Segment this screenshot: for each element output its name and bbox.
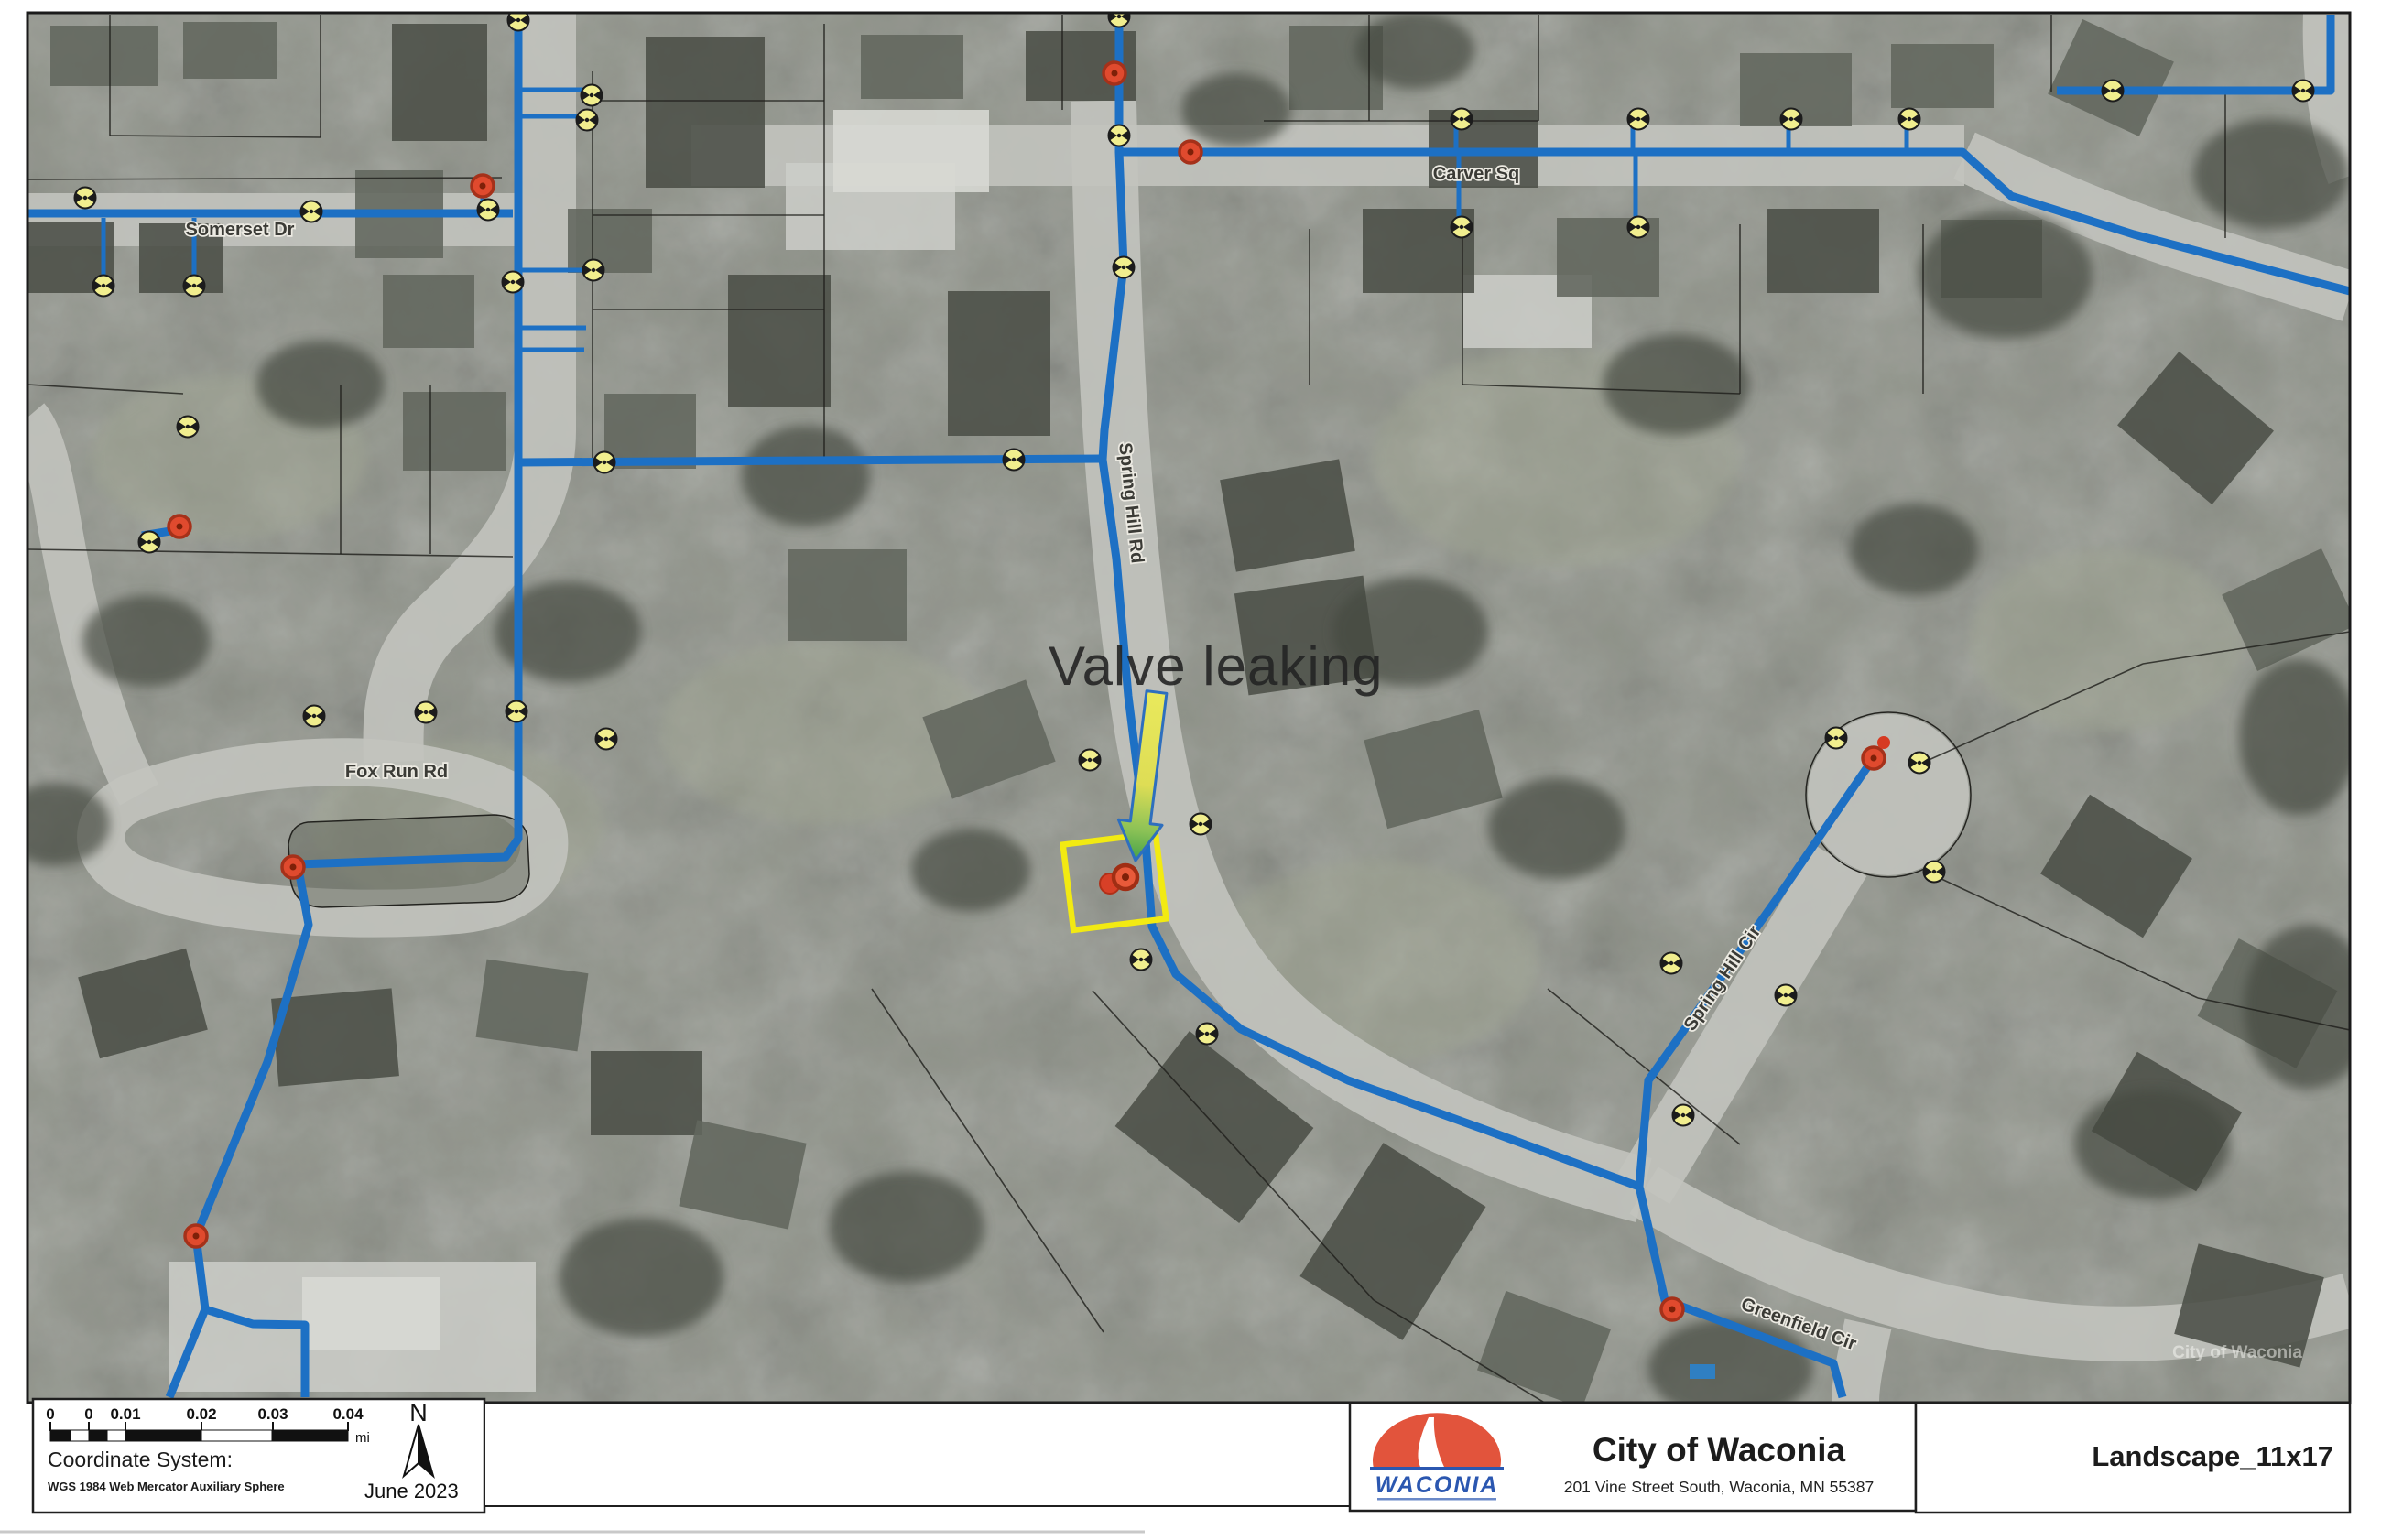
tree-canopy: [742, 426, 870, 526]
parked-car: [1690, 1364, 1715, 1379]
tree-canopy: [2074, 1090, 2230, 1199]
house-roof: [1767, 209, 1879, 293]
aerial-map: Somerset DrCarver SqSpring Hill RdFox Ru…: [0, 6, 2372, 1466]
valve-icon: [1109, 125, 1130, 146]
scale-bar-segment: [71, 1430, 89, 1441]
house-roof: [646, 37, 765, 188]
valve-icon: [2103, 81, 2124, 102]
hydrant-icon: [1863, 747, 1885, 769]
valve-icon: [1080, 750, 1101, 771]
valve-icon: [1114, 257, 1135, 278]
valve-icon: [503, 272, 524, 293]
tree-canopy: [2239, 659, 2358, 815]
valve-icon: [75, 188, 96, 209]
tree-canopy: [1603, 334, 1749, 435]
lawn-patch: [1969, 549, 2244, 732]
footer: 000.010.020.030.04 mi Coordinate System:…: [33, 1399, 2350, 1513]
city-name: City of Waconia: [1593, 1431, 1846, 1469]
valve-icon: [1190, 814, 1212, 835]
leak-annotation: Valve leaking: [1049, 635, 1383, 697]
valve-icon: [1776, 985, 1797, 1006]
house-roof: [403, 392, 506, 471]
scale-tick-label: 0: [46, 1405, 54, 1423]
valve-icon: [577, 110, 598, 131]
house-roof: [476, 960, 589, 1052]
valve-icon: [416, 702, 437, 723]
tree-canopy: [1488, 778, 1625, 879]
hydrant-icon: [185, 1225, 207, 1247]
house-roof: [392, 24, 487, 141]
scale-bar-segment: [107, 1430, 125, 1441]
hydrant-icon: [1180, 141, 1201, 163]
valve-icon: [139, 532, 160, 553]
city-address: 201 Vine Street South, Waconia, MN 55387: [1564, 1478, 1875, 1496]
street-label: Somerset Dr: [186, 220, 295, 240]
tree-canopy: [911, 829, 1030, 911]
scale-tick-label: 0: [84, 1405, 92, 1423]
scale-bar-segment: [201, 1430, 272, 1441]
valve-icon: [178, 417, 199, 438]
valve-icon: [301, 201, 322, 222]
scale-unit: mi: [355, 1430, 370, 1446]
valve-icon: [1004, 450, 1025, 471]
tree-canopy: [559, 1218, 723, 1337]
valve-icon: [506, 701, 527, 722]
valve-icon: [596, 729, 617, 750]
north-label: N: [409, 1399, 428, 1426]
tree-canopy: [1355, 12, 1474, 89]
tree-canopy: [82, 595, 211, 687]
coordinate-system-label: Coordinate System:: [48, 1448, 233, 1471]
house-roof: [948, 291, 1050, 436]
tree-canopy: [256, 341, 385, 428]
coordinate-system-value: WGS 1984 Web Mercator Auxiliary Sphere: [48, 1480, 285, 1493]
house-roof: [788, 549, 907, 641]
valve-icon: [1909, 753, 1930, 774]
valve-icon: [184, 276, 205, 297]
valve-icon: [93, 276, 114, 297]
hydrant-icon: [1661, 1298, 1683, 1320]
valve-icon: [1628, 109, 1649, 130]
valve-icon: [1131, 949, 1152, 971]
hydrant-icon: [169, 515, 190, 537]
map-document-page: Somerset DrCarver SqSpring Hill RdFox Ru…: [0, 0, 2381, 1540]
valve-icon: [594, 452, 615, 473]
tree-canopy: [1181, 73, 1291, 146]
valve-icon: [1451, 109, 1473, 130]
street-label: Carver Sq: [1433, 164, 1520, 184]
valve-icon: [1781, 109, 1802, 130]
valve-icon: [1661, 953, 1682, 974]
house-roof: [383, 275, 474, 348]
street-label: Fox Run Rd: [345, 762, 448, 782]
logo-wordmark: WACONIA: [1375, 1472, 1499, 1498]
valve-icon: [1899, 109, 1920, 130]
valve-icon: [1673, 1105, 1694, 1126]
house-roof: [1891, 44, 1994, 108]
valve-icon: [304, 706, 325, 727]
scale-bar-segment: [272, 1430, 348, 1441]
valve-icon: [583, 260, 604, 281]
leaking-valve-icon: [1114, 865, 1137, 889]
scale-tick-label: 0.04: [332, 1405, 364, 1423]
house-roof: [861, 35, 963, 99]
footer-empty-box: [484, 1403, 1350, 1506]
valve-icon: [1826, 728, 1847, 749]
hydrant-icon: [1104, 62, 1125, 84]
valve-icon: [478, 200, 499, 221]
map-date: June 2023: [364, 1480, 459, 1502]
valve-icon: [1451, 217, 1473, 238]
house-roof: [271, 988, 399, 1086]
scale-tick-label: 0.03: [257, 1405, 288, 1423]
tree-canopy: [829, 1172, 984, 1282]
valve-icon: [2293, 81, 2314, 102]
house-roof: [833, 110, 989, 192]
house-roof: [591, 1051, 702, 1135]
map-watermark: City of Waconia: [2172, 1343, 2302, 1362]
house-roof: [568, 209, 652, 273]
layout-label: Landscape_11x17: [2092, 1440, 2333, 1472]
hydrant-dot-icon: [1877, 736, 1890, 749]
house-roof: [50, 26, 158, 86]
valve-icon: [582, 85, 603, 106]
house-roof: [728, 275, 831, 407]
hydrant-icon: [282, 856, 304, 878]
scale-bar-segment: [89, 1430, 107, 1441]
valve-icon: [1628, 217, 1649, 238]
tree-canopy: [1919, 211, 2093, 339]
tree-canopy: [1850, 504, 1978, 595]
scale-bar-segment: [50, 1430, 71, 1441]
house-roof: [183, 22, 277, 79]
scale-tick-label: 0.01: [110, 1405, 140, 1423]
house-roof: [302, 1277, 440, 1350]
hydrant-icon: [472, 175, 494, 197]
scale-bar-segment: [125, 1430, 201, 1441]
scale-tick-label: 0.02: [186, 1405, 216, 1423]
valve-icon: [1197, 1024, 1218, 1045]
valve-icon: [1924, 862, 1945, 883]
tree-canopy: [2193, 119, 2349, 229]
